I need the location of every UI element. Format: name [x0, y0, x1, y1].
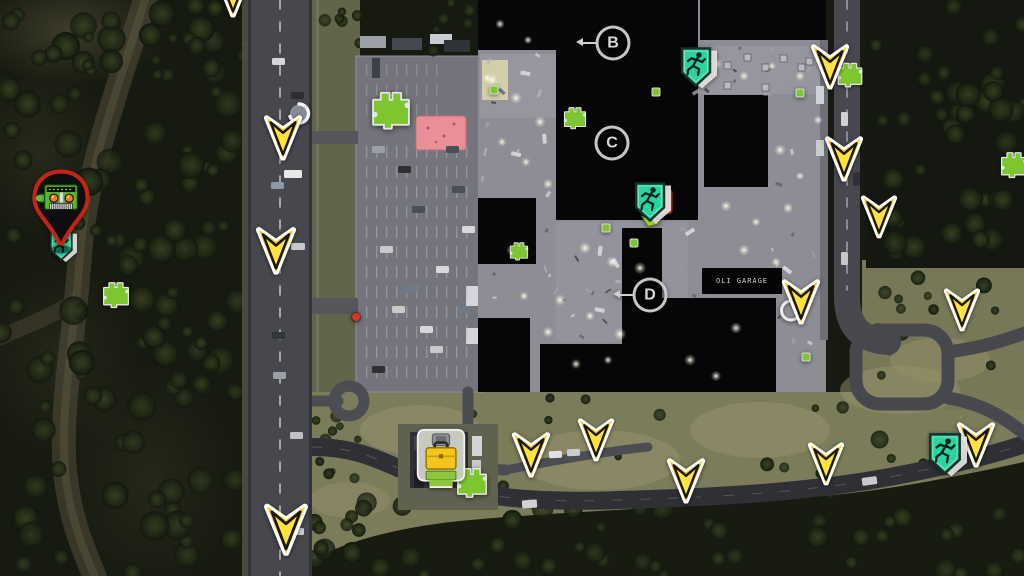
waypoint-arrow-marker[interactable] — [664, 456, 708, 509]
waypoint-arrow-marker[interactable] — [822, 134, 866, 187]
letter-label: B — [607, 34, 619, 52]
exit-shield-marker[interactable] — [920, 427, 973, 489]
waypoint-arrow-marker[interactable] — [779, 277, 823, 330]
game-map-screen: B C D OLI GARAGE — [0, 0, 1024, 576]
exit-shield-marker[interactable] — [626, 177, 676, 236]
waypoint-arrow-marker[interactable] — [211, 0, 255, 23]
waypoint-arrow-marker[interactable] — [253, 224, 299, 280]
letter-label: D — [644, 286, 656, 304]
waypoint-arrow-marker[interactable] — [575, 416, 617, 466]
map-canvas[interactable]: B C D OLI GARAGE — [0, 0, 1024, 576]
letter-pointer — [583, 42, 596, 44]
building-label: OLI GARAGE — [709, 273, 775, 289]
red-dot — [352, 313, 360, 321]
waypoint-arrow-marker[interactable] — [858, 193, 900, 243]
letter-label: C — [606, 134, 618, 152]
item-dot — [796, 89, 805, 98]
marker-layer: B C D OLI GARAGE — [0, 0, 1024, 576]
waypoint-arrow-marker[interactable] — [805, 440, 847, 490]
briefcase-icon — [426, 448, 456, 469]
puzzle-piece-marker[interactable] — [998, 148, 1024, 185]
waypoint-arrow-marker[interactable] — [509, 430, 553, 483]
item-dot — [802, 353, 811, 362]
puzzle-piece-marker[interactable] — [368, 85, 414, 139]
waypoint-arrow-marker[interactable] — [808, 42, 852, 95]
item-dot — [602, 224, 611, 233]
waypoint-arrow-marker[interactable] — [261, 113, 305, 166]
item-dot — [490, 86, 499, 95]
waypoint-arrow-marker[interactable] — [261, 501, 312, 562]
toolbox-trader-marker[interactable] — [414, 427, 468, 498]
letter-pointer — [620, 294, 633, 296]
item-dot — [652, 88, 661, 97]
item-dot — [630, 239, 639, 248]
exit-shield-marker[interactable] — [672, 42, 722, 101]
location-pin-marker[interactable] — [29, 169, 93, 264]
waypoint-arrow-marker[interactable] — [941, 286, 983, 336]
puzzle-piece-marker[interactable] — [508, 239, 530, 265]
puzzle-piece-marker[interactable] — [561, 103, 588, 134]
puzzle-piece-marker[interactable] — [100, 278, 132, 315]
